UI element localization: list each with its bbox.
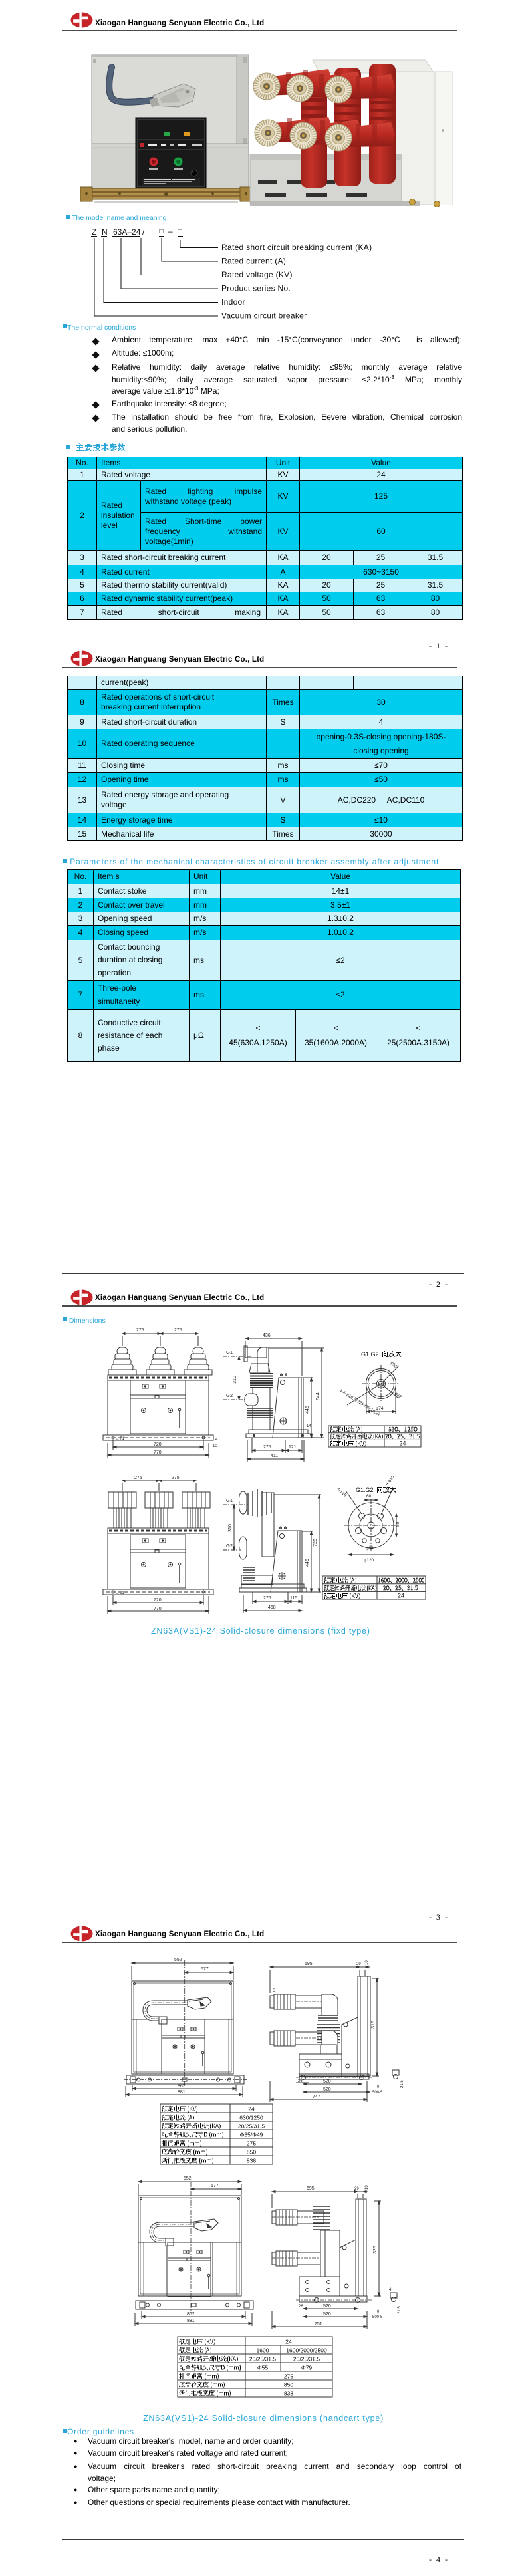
svg-text:21.5: 21.5 <box>400 2080 404 2088</box>
svg-text:0: 0 <box>377 2085 380 2089</box>
svg-text:4-φ18: 4-φ18 <box>336 1487 348 1498</box>
svg-text:552: 552 <box>184 2176 192 2181</box>
svg-text:4: 4 <box>215 1438 218 1442</box>
svg-text:Product series No.: Product series No. <box>221 284 291 293</box>
svg-text:20/25/31.5: 20/25/31.5 <box>238 2123 265 2130</box>
svg-text:20/25/31.5: 20/25/31.5 <box>293 2356 320 2363</box>
svg-text:850: 850 <box>247 2149 256 2156</box>
svg-text:445: 445 <box>305 1406 310 1414</box>
svg-text:29: 29 <box>356 1962 361 1966</box>
svg-text:500-5: 500-5 <box>372 2091 383 2095</box>
svg-text:770: 770 <box>154 1450 162 1455</box>
svg-text:G1.G2: G1.G2 <box>356 1487 374 1493</box>
svg-text:G1: G1 <box>226 1497 233 1503</box>
svg-text:4-4-φ18,深22#966;18,22: 4-4-φ18,深22#966;18,22 <box>338 1387 382 1417</box>
svg-text:862: 862 <box>187 2312 195 2317</box>
svg-text:881: 881 <box>178 2090 186 2095</box>
svg-text:26: 26 <box>299 2305 303 2309</box>
svg-text:275: 275 <box>263 1445 271 1450</box>
svg-text:862: 862 <box>178 2084 186 2089</box>
svg-text:63A–24: 63A–24 <box>113 227 141 237</box>
svg-text:G2: G2 <box>226 1543 233 1549</box>
svg-text:275: 275 <box>134 1476 142 1480</box>
svg-text:1600/2000/2500: 1600/2000/2500 <box>286 2347 327 2354</box>
svg-text:838: 838 <box>284 2390 293 2397</box>
svg-text:577: 577 <box>211 2184 219 2188</box>
svg-text:577: 577 <box>201 1967 209 1972</box>
svg-text:φ120: φ120 <box>364 1558 374 1563</box>
svg-text:275: 275 <box>174 1328 182 1333</box>
svg-text:720: 720 <box>154 1442 162 1447</box>
svg-text:520: 520 <box>323 2087 331 2092</box>
svg-text:1600: 1600 <box>257 2347 269 2354</box>
svg-text:26: 26 <box>298 2079 303 2083</box>
svg-text:0: 0 <box>377 2310 380 2314</box>
svg-text:/: / <box>142 227 145 237</box>
svg-text:Rated voltage (KV): Rated voltage (KV) <box>221 270 293 279</box>
svg-text:10: 10 <box>213 1444 217 1448</box>
svg-text:Indoor: Indoor <box>221 297 245 307</box>
svg-text:G1.G2: G1.G2 <box>361 1351 379 1358</box>
svg-text:24: 24 <box>398 1593 404 1599</box>
svg-text:Φ79: Φ79 <box>301 2365 313 2371</box>
svg-text:850: 850 <box>284 2382 293 2388</box>
svg-text:14: 14 <box>307 1424 311 1428</box>
svg-text:695: 695 <box>305 1962 313 1966</box>
svg-text:G1: G1 <box>226 1349 233 1355</box>
svg-text:310: 310 <box>228 1524 233 1532</box>
svg-text:Vacuum circuit breaker: Vacuum circuit breaker <box>221 311 307 321</box>
svg-text:275: 275 <box>263 1596 271 1601</box>
svg-text:500-5: 500-5 <box>372 2315 383 2319</box>
svg-text:325: 325 <box>373 2246 378 2254</box>
svg-text:520: 520 <box>323 2304 331 2309</box>
svg-text:411: 411 <box>271 1454 278 1458</box>
svg-text:29: 29 <box>354 2187 359 2191</box>
svg-text:4-φ10: 4-φ10 <box>384 1474 396 1486</box>
svg-text:770: 770 <box>154 1607 162 1611</box>
svg-text:630/1250: 630/1250 <box>239 2115 263 2121</box>
svg-text:436: 436 <box>263 1333 271 1338</box>
svg-text:275: 275 <box>284 2373 293 2380</box>
svg-text:695: 695 <box>307 2186 315 2191</box>
svg-text:φ62: φ62 <box>394 1391 403 1400</box>
svg-text:115: 115 <box>290 1596 297 1601</box>
svg-text:80: 80 <box>396 1521 400 1527</box>
svg-text:315: 315 <box>371 2021 376 2029</box>
svg-text:φ64: φ64 <box>366 1546 374 1551</box>
svg-text:□: □ <box>178 228 182 235</box>
svg-text:520: 520 <box>323 2079 331 2084</box>
svg-text:–: – <box>168 227 173 236</box>
svg-text:520: 520 <box>323 2312 331 2317</box>
svg-text:Z: Z <box>92 227 96 237</box>
svg-text:445: 445 <box>305 1559 310 1567</box>
svg-text:552: 552 <box>174 1958 182 1962</box>
svg-text:24: 24 <box>285 2339 292 2345</box>
svg-text:728: 728 <box>313 1539 318 1547</box>
svg-text:881: 881 <box>187 2319 195 2323</box>
svg-text:275: 275 <box>172 1476 180 1480</box>
svg-text:644: 644 <box>316 1392 320 1400</box>
svg-text:751: 751 <box>315 2322 322 2327</box>
svg-text:□: □ <box>160 228 164 235</box>
svg-text:Φ35/Φ49: Φ35/Φ49 <box>240 2132 263 2138</box>
svg-text:20/25/31.5: 20/25/31.5 <box>249 2356 276 2363</box>
svg-text:838: 838 <box>247 2158 256 2164</box>
svg-text:121: 121 <box>289 1445 297 1450</box>
svg-text:N: N <box>102 227 108 237</box>
svg-text:Rated current (A): Rated current (A) <box>221 257 286 266</box>
svg-text:468: 468 <box>268 1605 276 1610</box>
svg-text:24: 24 <box>248 2106 255 2113</box>
svg-text:Φ55: Φ55 <box>257 2365 269 2371</box>
svg-text:60: 60 <box>366 1494 372 1499</box>
svg-text:747: 747 <box>313 2095 320 2099</box>
svg-text:10: 10 <box>365 2185 369 2190</box>
svg-text:G2: G2 <box>226 1392 233 1398</box>
svg-text:310: 310 <box>233 1376 237 1384</box>
svg-text:720: 720 <box>154 1598 162 1603</box>
svg-text:←L1: ←L1 <box>116 1591 124 1595</box>
svg-text:Rated short circuit breaking c: Rated short circuit breaking current (KA… <box>221 243 372 252</box>
svg-text:10: 10 <box>365 1960 369 1965</box>
svg-text:21.5: 21.5 <box>398 2306 402 2314</box>
svg-text:φ74: φ74 <box>376 1406 384 1411</box>
svg-text:D: D <box>273 1989 276 1993</box>
svg-text:275: 275 <box>247 2140 256 2147</box>
svg-text:24: 24 <box>399 1440 406 1447</box>
svg-text:4: 4 <box>389 2288 392 2292</box>
svg-text:←T1: ←T1 <box>116 1437 125 1441</box>
svg-text:275: 275 <box>136 1328 144 1333</box>
